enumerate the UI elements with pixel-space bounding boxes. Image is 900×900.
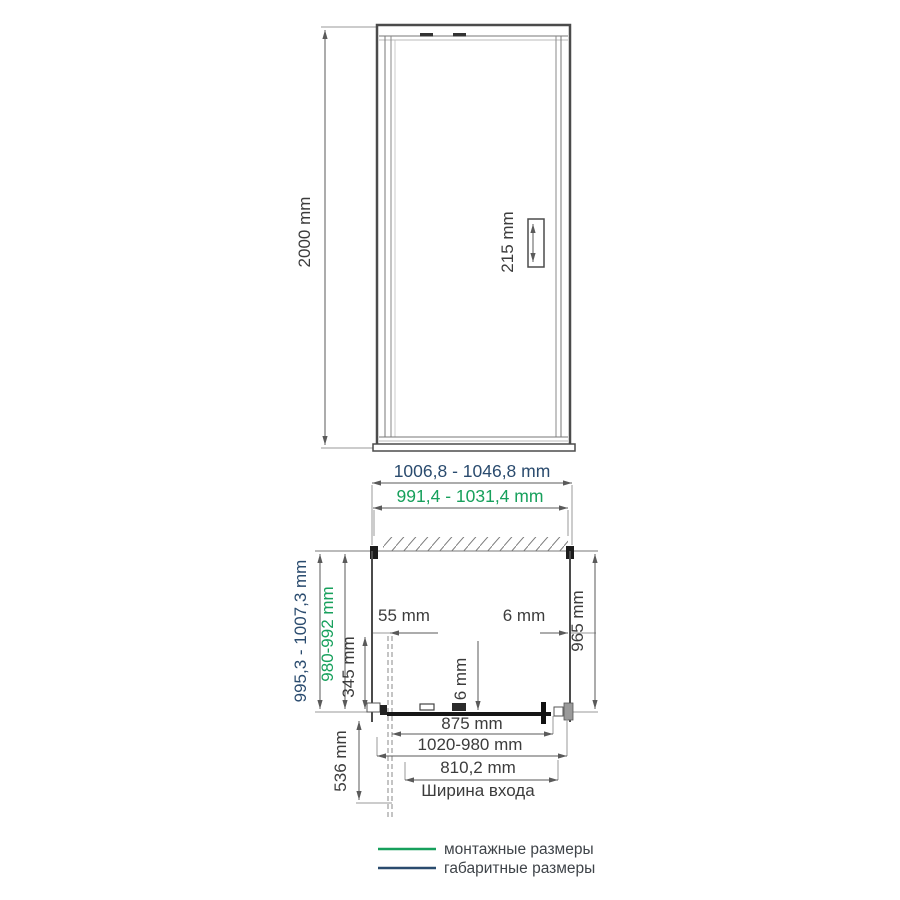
door-handle-plan bbox=[541, 702, 546, 724]
dimension-label-entrance-width: 810,2 mm bbox=[440, 758, 516, 777]
bottom-sill bbox=[373, 444, 575, 451]
legend: монтажные размеры габаритные размеры bbox=[378, 841, 595, 877]
dimension-label-mounting-width: 991,4 - 1031,4 mm bbox=[397, 486, 544, 506]
dimension-label-glass-thickness: 6 mm bbox=[451, 658, 470, 701]
legend-mounting-label: монтажные размеры bbox=[444, 841, 594, 858]
dimension-label-875: 875 mm bbox=[441, 714, 502, 733]
door-handle-front bbox=[528, 219, 544, 267]
right-wall-block bbox=[564, 703, 573, 720]
entrance-width-caption: Ширина входа bbox=[421, 781, 535, 800]
front-elevation-view: 2000 mm 215 mm bbox=[295, 25, 575, 451]
dimension-label-965: 965 mm bbox=[568, 590, 587, 651]
dimension-label-handle: 215 mm bbox=[498, 211, 517, 272]
left-wall-profile bbox=[367, 703, 380, 712]
dimension-label-345: 345 mm bbox=[339, 636, 358, 697]
wall-hatch bbox=[383, 537, 568, 551]
dimension-label-536: 536 mm bbox=[331, 730, 350, 791]
shower-door-drawing: 2000 mm 215 mm 1006,8 - 1046,8 mm 991,4 … bbox=[0, 0, 900, 900]
technical-drawing-page: 2000 mm 215 mm 1006,8 - 1046,8 mm 991,4 … bbox=[0, 0, 900, 900]
dimension-label-right-gap: 6 mm bbox=[503, 606, 546, 625]
dimension-label-door-height: 2000 mm bbox=[295, 197, 314, 268]
left-pivot-block bbox=[380, 705, 387, 715]
door-bracket bbox=[420, 704, 434, 710]
dimension-label-mounting-depth: 980-992 mm bbox=[318, 586, 337, 681]
plan-view: 1006,8 - 1046,8 mm 991,4 - 1031,4 mm 995… bbox=[291, 461, 598, 818]
dimension-label-adjustment-range: 1020-980 mm bbox=[418, 735, 523, 754]
dimension-label-overall-depth: 995,3 - 1007,3 mm bbox=[291, 560, 310, 703]
dimension-label-overall-width: 1006,8 - 1046,8 mm bbox=[394, 461, 551, 481]
door-bracket-dark bbox=[452, 703, 466, 711]
legend-overall-label: габаритные размеры bbox=[444, 860, 595, 877]
right-wall-profile bbox=[554, 707, 563, 716]
top-bracket-mark bbox=[453, 33, 466, 37]
top-bracket-mark bbox=[420, 33, 433, 37]
dimension-label-55: 55 mm bbox=[378, 606, 430, 625]
